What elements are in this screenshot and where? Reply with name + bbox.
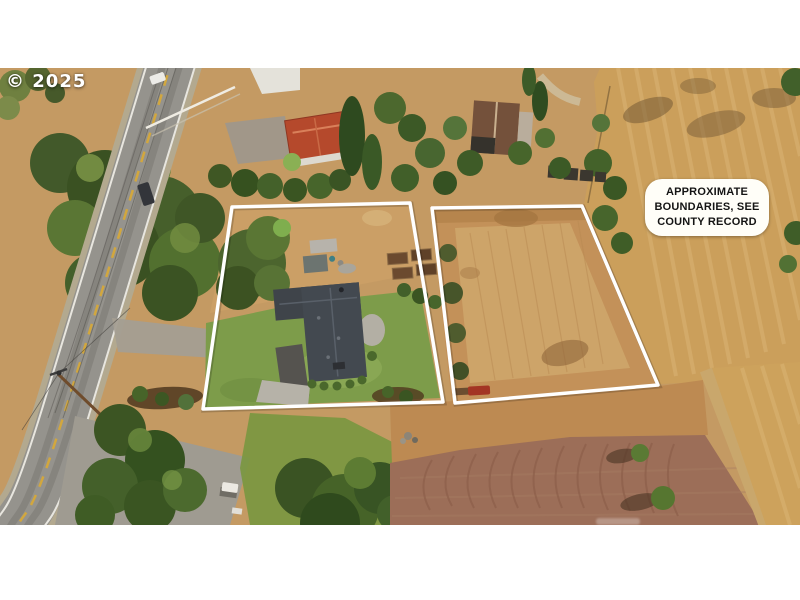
disclaimer-line-3: COUNTY RECORD [657,215,757,230]
disclaimer-line-1: APPROXIMATE [666,185,748,200]
copyright-watermark: © 2025 [6,71,86,92]
aerial-scene [0,68,800,525]
disclaimer-line-2: BOUNDARIES, SEE [654,200,759,215]
faint-photographer-watermark [596,518,640,525]
aerial-photo [0,68,800,525]
boundaries-disclaimer-label: APPROXIMATE BOUNDARIES, SEE COUNTY RECOR… [645,179,769,236]
